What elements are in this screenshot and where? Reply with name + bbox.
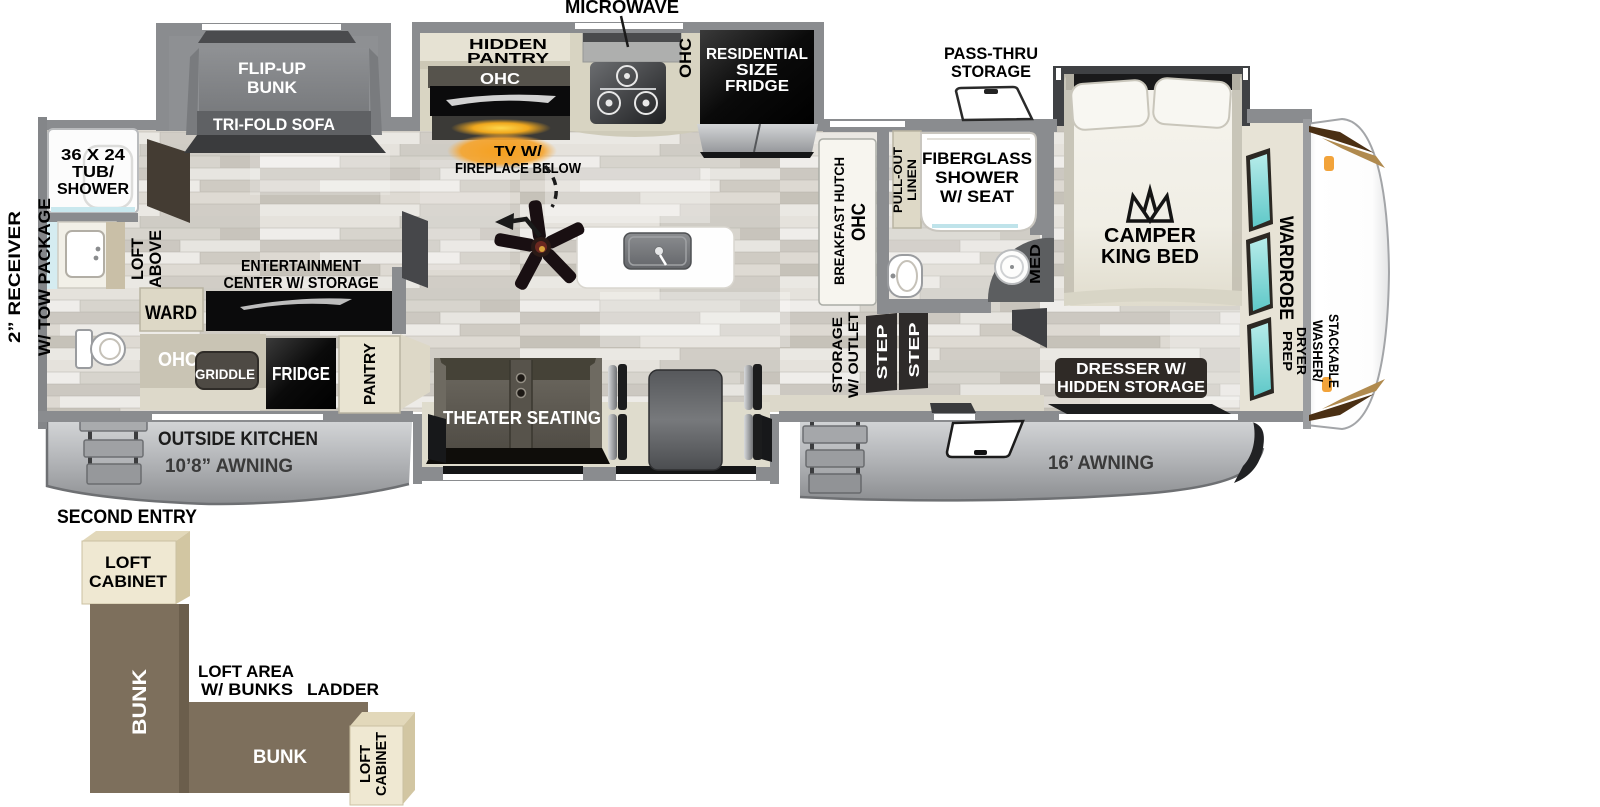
svg-text:2” RECEIVER: 2” RECEIVER (5, 211, 24, 343)
svg-text:FRIDGE: FRIDGE (272, 364, 330, 384)
svg-text:THEATER SEATING: THEATER SEATING (443, 408, 601, 428)
svg-text:10’8” AWNING: 10’8” AWNING (165, 455, 293, 477)
svg-text:SHOWER: SHOWER (935, 168, 1019, 187)
svg-text:DRYER: DRYER (1294, 327, 1309, 376)
svg-text:ENTERTAINMENT: ENTERTAINMENT (241, 258, 361, 275)
svg-text:DRESSER W/: DRESSER W/ (1076, 361, 1187, 378)
svg-text:WARDROBE: WARDROBE (1275, 216, 1296, 320)
svg-text:OHC: OHC (480, 71, 520, 88)
svg-text:KING BED: KING BED (1101, 246, 1199, 268)
svg-text:16’ AWNING: 16’ AWNING (1048, 453, 1154, 474)
svg-text:TRI-FOLD SOFA: TRI-FOLD SOFA (213, 115, 335, 134)
svg-text:TV W/: TV W/ (494, 143, 543, 160)
svg-text:WASHER/: WASHER/ (1310, 320, 1326, 382)
svg-text:FIREPLACE BELOW: FIREPLACE BELOW (455, 160, 582, 177)
svg-text:W/ TOW PACKAGE: W/ TOW PACKAGE (35, 198, 54, 356)
svg-text:CENTER W/ STORAGE: CENTER W/ STORAGE (224, 275, 379, 292)
svg-text:BUNK: BUNK (247, 78, 298, 97)
svg-text:STORAGE: STORAGE (951, 62, 1031, 81)
svg-text:LOFT: LOFT (105, 553, 152, 572)
svg-text:BUNK: BUNK (130, 669, 151, 735)
svg-text:SECOND ENTRY: SECOND ENTRY (57, 507, 197, 528)
svg-text:GRIDDLE: GRIDDLE (195, 366, 255, 382)
svg-text:STACKABLE: STACKABLE (1326, 314, 1342, 388)
svg-text:OHC: OHC (849, 203, 870, 241)
svg-text:BREAKFAST HUTCH: BREAKFAST HUTCH (832, 157, 847, 285)
svg-text:W/ SEAT: W/ SEAT (940, 187, 1015, 206)
svg-text:STORAGE: STORAGE (829, 317, 845, 393)
svg-text:LINEN: LINEN (905, 159, 919, 201)
svg-text:TUB/: TUB/ (72, 164, 115, 181)
svg-text:HIDDEN STORAGE: HIDDEN STORAGE (1057, 379, 1205, 396)
svg-text:PULL-OUT: PULL-OUT (891, 146, 905, 213)
svg-text:PANTRY: PANTRY (467, 50, 549, 67)
svg-text:BUNK: BUNK (253, 747, 307, 768)
svg-text:W/ BUNKS: W/ BUNKS (201, 680, 293, 699)
svg-text:OHC: OHC (158, 349, 198, 371)
svg-text:WARD: WARD (145, 303, 197, 324)
svg-text:FRIDGE: FRIDGE (725, 78, 789, 95)
svg-text:RESIDENTIAL: RESIDENTIAL (706, 46, 808, 63)
svg-text:ABOVE: ABOVE (146, 230, 165, 288)
svg-text:SIZE: SIZE (736, 62, 778, 79)
svg-text:PASS-THRU: PASS-THRU (944, 44, 1038, 63)
svg-text:STEP: STEP (906, 323, 923, 378)
svg-text:STEP: STEP (874, 325, 891, 380)
svg-text:MICROWAVE: MICROWAVE (565, 0, 679, 17)
svg-text:PANTRY: PANTRY (362, 343, 379, 405)
svg-text:LOFT AREA: LOFT AREA (198, 662, 294, 681)
svg-text:MED: MED (1027, 244, 1044, 284)
svg-text:CABINET: CABINET (373, 732, 390, 796)
svg-text:PREP: PREP (1280, 331, 1295, 371)
svg-text:CAMPER: CAMPER (1104, 225, 1197, 247)
svg-text:LADDER: LADDER (307, 680, 379, 699)
svg-text:OUTSIDE KITCHEN: OUTSIDE KITCHEN (158, 428, 318, 450)
svg-text:FIBERGLASS: FIBERGLASS (922, 149, 1032, 168)
svg-text:OHC: OHC (676, 38, 695, 78)
svg-text:SHOWER: SHOWER (57, 181, 129, 198)
svg-text:W/ OUTLET: W/ OUTLET (845, 312, 861, 398)
svg-text:36 X 24: 36 X 24 (61, 147, 125, 164)
svg-text:FLIP-UP: FLIP-UP (238, 59, 306, 78)
svg-text:CABINET: CABINET (89, 572, 168, 591)
svg-text:LOFT: LOFT (357, 745, 374, 783)
svg-text:LOFT: LOFT (128, 237, 147, 280)
